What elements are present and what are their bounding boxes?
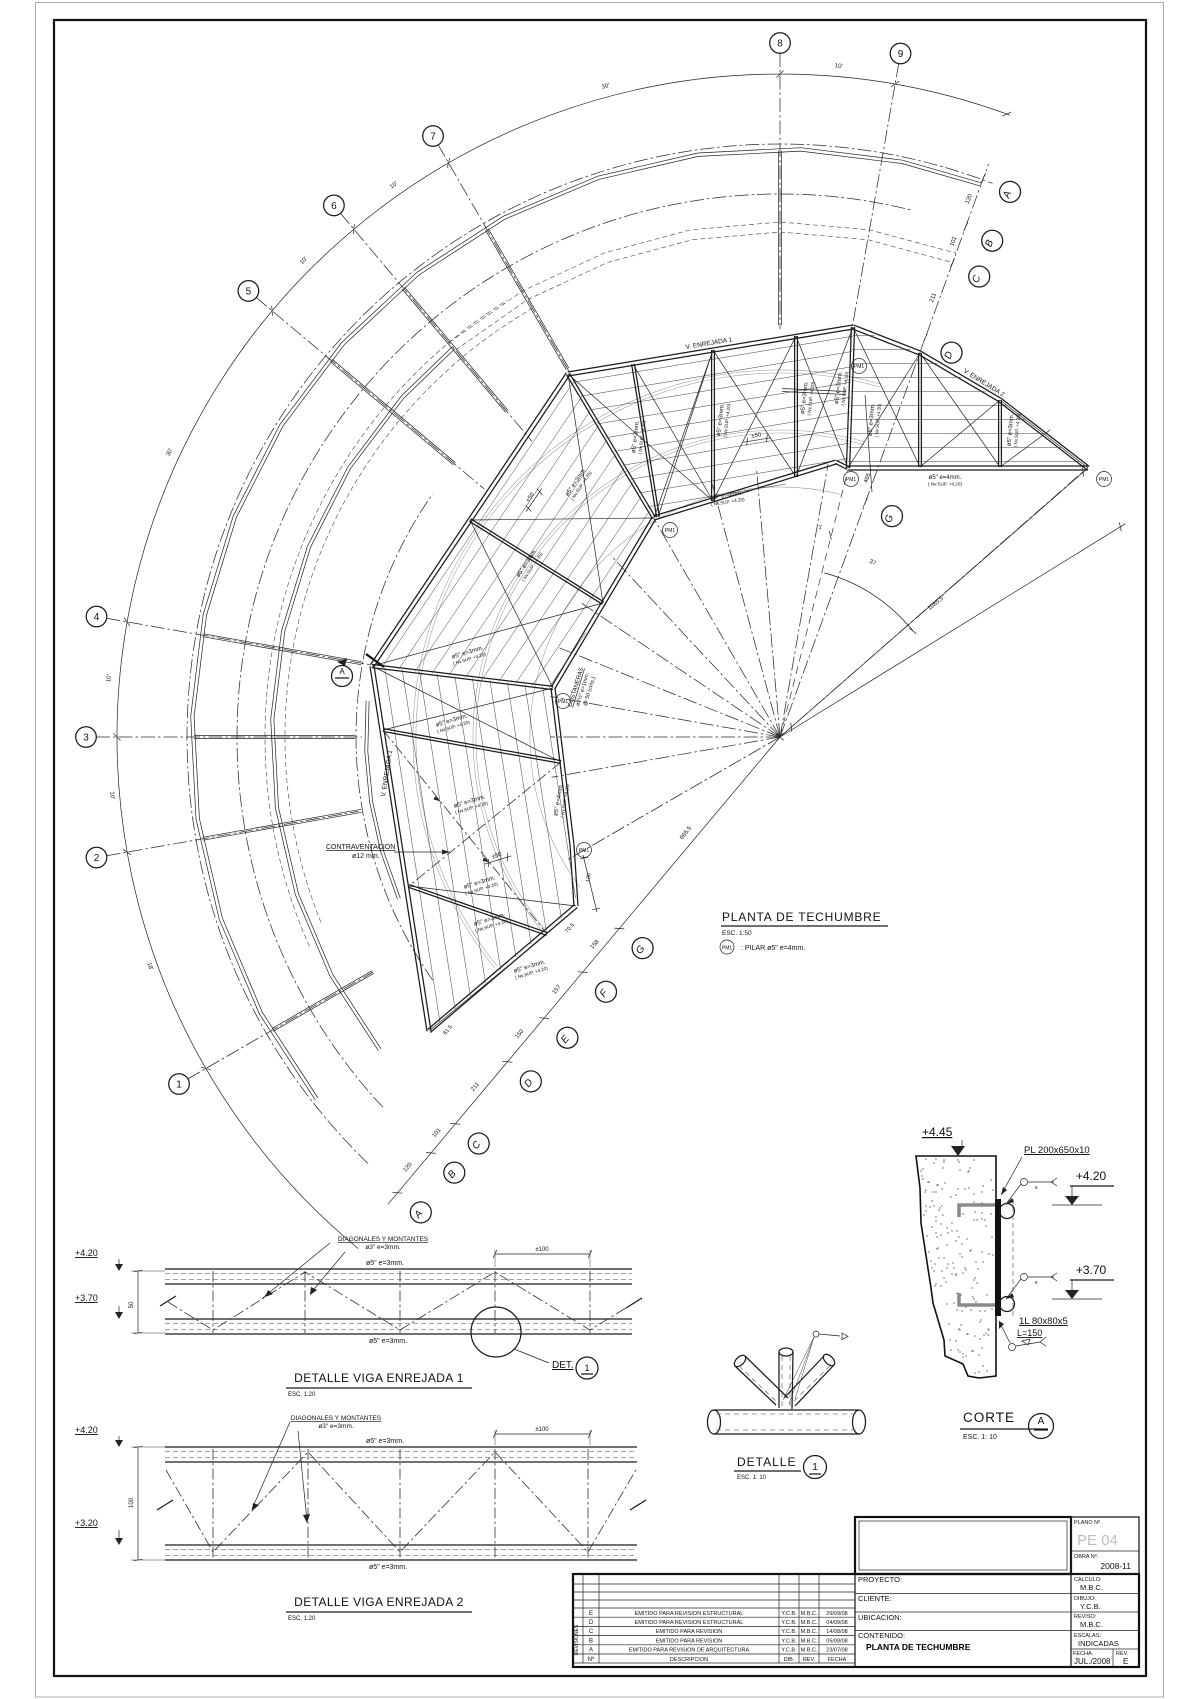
svg-text:10': 10' <box>106 674 113 682</box>
svg-text:5: 5 <box>246 287 252 298</box>
svg-text:CLIENTE:: CLIENTE: <box>858 1594 892 1603</box>
svg-text:UBICACION:: UBICACION: <box>858 1613 902 1622</box>
svg-text:EMITIDO PARA REVISION: EMITIDO PARA REVISION <box>656 1638 723 1644</box>
svg-text:A: A <box>1038 1416 1045 1427</box>
svg-text:: PILAR ø5" e=4mm.: : PILAR ø5" e=4mm. <box>741 945 805 952</box>
svg-text:+3.70: +3.70 <box>75 1293 98 1303</box>
svg-text:05/08/08: 05/08/08 <box>826 1638 847 1644</box>
svg-text:DETALLE: DETALLE <box>737 1455 796 1469</box>
svg-text:ø5" e=3mm.: ø5" e=3mm. <box>369 1564 407 1571</box>
svg-text:23/07/08: 23/07/08 <box>826 1648 847 1654</box>
svg-text:A: A <box>589 1648 593 1654</box>
svg-text:3: 3 <box>83 733 89 744</box>
svg-text:M.B.C.: M.B.C. <box>801 1629 818 1635</box>
svg-text:DET.: DET. <box>552 1360 574 1371</box>
svg-text:ø12 mm.: ø12 mm. <box>352 853 380 860</box>
svg-text:M.B.C.: M.B.C. <box>801 1620 818 1626</box>
svg-text:EMITIDO PARA REVISION ESTRU: EMITIDO PARA REVISION ESTRUCTURAL <box>635 1611 744 1617</box>
svg-text:29/09/08: 29/09/08 <box>826 1611 847 1617</box>
svg-text:+4.20: +4.20 <box>75 1248 98 1258</box>
svg-text:ø5" e=4mm.: ø5" e=4mm. <box>929 475 962 481</box>
svg-text:M.B.C.: M.B.C. <box>801 1611 818 1617</box>
svg-text:M.B.C.: M.B.C. <box>801 1638 818 1644</box>
svg-text:+4.20: +4.20 <box>75 1425 98 1435</box>
svg-text:14/08/08: 14/08/08 <box>826 1629 847 1635</box>
svg-text:E: E <box>589 1611 593 1617</box>
svg-text:PM1: PM1 <box>579 848 590 854</box>
svg-text:2008-11: 2008-11 <box>1100 1561 1131 1571</box>
svg-text:±100: ±100 <box>535 1427 549 1433</box>
svg-text:EMITIDO PARA REVISION ESTRU: EMITIDO PARA REVISION ESTRUCTURAL <box>635 1620 744 1626</box>
svg-text:DETALLE VIGA ENREJADA 2: DETALLE VIGA ENREJADA 2 <box>294 1595 464 1609</box>
svg-text:+3.70: +3.70 <box>1076 1263 1107 1277</box>
svg-text:PE 04: PE 04 <box>1077 1532 1118 1549</box>
svg-text:A: A <box>339 667 345 676</box>
svg-text:1: 1 <box>584 1363 589 1373</box>
svg-text:100: 100 <box>129 1497 135 1508</box>
svg-text:DIAGONALES Y MONTANTES: DIAGONALES Y MONTANTES <box>338 1236 429 1243</box>
svg-text:+4.20: +4.20 <box>1076 1169 1107 1183</box>
svg-text:DESCRIPCION: DESCRIPCION <box>670 1657 708 1663</box>
svg-text:EMITIDO PARA REVISION: EMITIDO PARA REVISION <box>656 1629 723 1635</box>
svg-text:( Nv.SUP. +4.20): ( Nv.SUP. +4.20) <box>928 482 962 487</box>
svg-text:Y.C.B.: Y.C.B. <box>781 1611 797 1617</box>
svg-text:ESC. 1: 10: ESC. 1: 10 <box>737 1475 767 1481</box>
svg-text:CONTENIDO:: CONTENIDO: <box>858 1631 905 1640</box>
svg-text:1': 1' <box>819 525 823 531</box>
svg-text:PLANTA DE TECHUMBRE: PLANTA DE TECHUMBRE <box>866 1642 971 1652</box>
svg-text:OBRA Nº.: OBRA Nº. <box>1074 1553 1099 1560</box>
svg-text:50: 50 <box>129 1301 135 1308</box>
svg-text:D: D <box>589 1620 594 1626</box>
svg-text:4: 4 <box>94 612 100 623</box>
svg-text:REVISIONES: REVISIONES <box>574 1624 580 1655</box>
svg-text:PLANO Nº.: PLANO Nº. <box>1074 1519 1102 1526</box>
svg-text:Nº: Nº <box>588 1656 595 1663</box>
svg-text:DIAGONALES Y MONTANTES: DIAGONALES Y MONTANTES <box>291 1415 382 1422</box>
svg-text:C: C <box>589 1629 594 1635</box>
svg-text:1: 1 <box>176 1080 182 1091</box>
svg-text:PM1: PM1 <box>722 946 733 952</box>
svg-text:6: 6 <box>331 201 337 212</box>
svg-text:PM1: PM1 <box>558 699 569 705</box>
svg-text:M.B.C.: M.B.C. <box>1080 1620 1103 1629</box>
svg-text:PM1: PM1 <box>854 364 865 370</box>
svg-text:ø3" e=3mm.: ø3" e=3mm. <box>365 1244 401 1251</box>
svg-text:INDICADAS: INDICADAS <box>1078 1639 1119 1648</box>
svg-text:M.B.C.: M.B.C. <box>801 1648 818 1654</box>
svg-text:ø5" e=3mm.: ø5" e=3mm. <box>366 1438 404 1445</box>
svg-text:L=150: L=150 <box>1017 1328 1042 1338</box>
svg-text:ESC. 1:50: ESC. 1:50 <box>722 930 752 937</box>
svg-text:PM1: PM1 <box>665 528 676 534</box>
svg-text:EMITIDO PARA REVISION DE A: EMITIDO PARA REVISION DE ARQUITECTURA <box>629 1648 750 1654</box>
svg-text:ø5" e=3mm.: ø5" e=3mm. <box>366 1260 404 1267</box>
svg-text:CORTE: CORTE <box>963 1410 1015 1425</box>
svg-text:10': 10' <box>835 63 843 70</box>
svg-text:ESC. 1:20: ESC. 1:20 <box>288 1392 316 1398</box>
svg-text:PM1: PM1 <box>1099 477 1110 483</box>
svg-text:PM1: PM1 <box>846 477 857 483</box>
svg-text:10': 10' <box>108 791 115 799</box>
svg-text:PROYECTO:: PROYECTO: <box>858 1575 902 1584</box>
svg-text:CONTRAVENTACION: CONTRAVENTACION <box>326 844 395 851</box>
svg-text:±100: ±100 <box>535 1247 549 1253</box>
svg-text:PLANTA DE TECHUMBRE: PLANTA DE TECHUMBRE <box>722 910 881 924</box>
svg-text:+3.20: +3.20 <box>75 1518 98 1528</box>
svg-text:Y.C.B.: Y.C.B. <box>1080 1602 1101 1611</box>
svg-text:B: B <box>589 1638 593 1644</box>
svg-text:Y.C.B.: Y.C.B. <box>781 1648 797 1654</box>
svg-text:+4.45: +4.45 <box>922 1125 953 1139</box>
svg-text:7: 7 <box>430 132 436 143</box>
svg-text:ø3" e=3mm.: ø3" e=3mm. <box>318 1423 354 1430</box>
svg-text:ESC. 1:20: ESC. 1:20 <box>288 1616 316 1622</box>
svg-text:Y.C.B.: Y.C.B. <box>781 1638 797 1644</box>
svg-text:REV.: REV. <box>803 1657 816 1663</box>
svg-text:DIB.: DIB. <box>784 1657 795 1663</box>
svg-text:8: 8 <box>777 39 783 50</box>
svg-text:ESC. 1: 10: ESC. 1: 10 <box>963 1434 997 1441</box>
svg-text:JUL./2008: JUL./2008 <box>1074 1657 1111 1666</box>
svg-text:PL 200x650x10: PL 200x650x10 <box>1024 1145 1090 1156</box>
svg-text:Y.C.B.: Y.C.B. <box>781 1629 797 1635</box>
svg-text:1L 80x80x5: 1L 80x80x5 <box>1019 1316 1068 1327</box>
svg-text:DETALLE VIGA ENREJADA 1: DETALLE VIGA ENREJADA 1 <box>294 1371 464 1385</box>
svg-text:FECHA: FECHA <box>828 1657 847 1663</box>
svg-text:1: 1 <box>812 1462 818 1473</box>
svg-text:04/09/08: 04/09/08 <box>826 1620 847 1626</box>
svg-text:M.B.C.: M.B.C. <box>1080 1583 1103 1592</box>
svg-text:Y.C.B.: Y.C.B. <box>781 1620 797 1626</box>
svg-text:9: 9 <box>898 49 904 60</box>
svg-text:ø5" e=3mm.: ø5" e=3mm. <box>369 1338 407 1345</box>
svg-text:2: 2 <box>94 853 100 864</box>
svg-text:E: E <box>1123 1657 1128 1666</box>
